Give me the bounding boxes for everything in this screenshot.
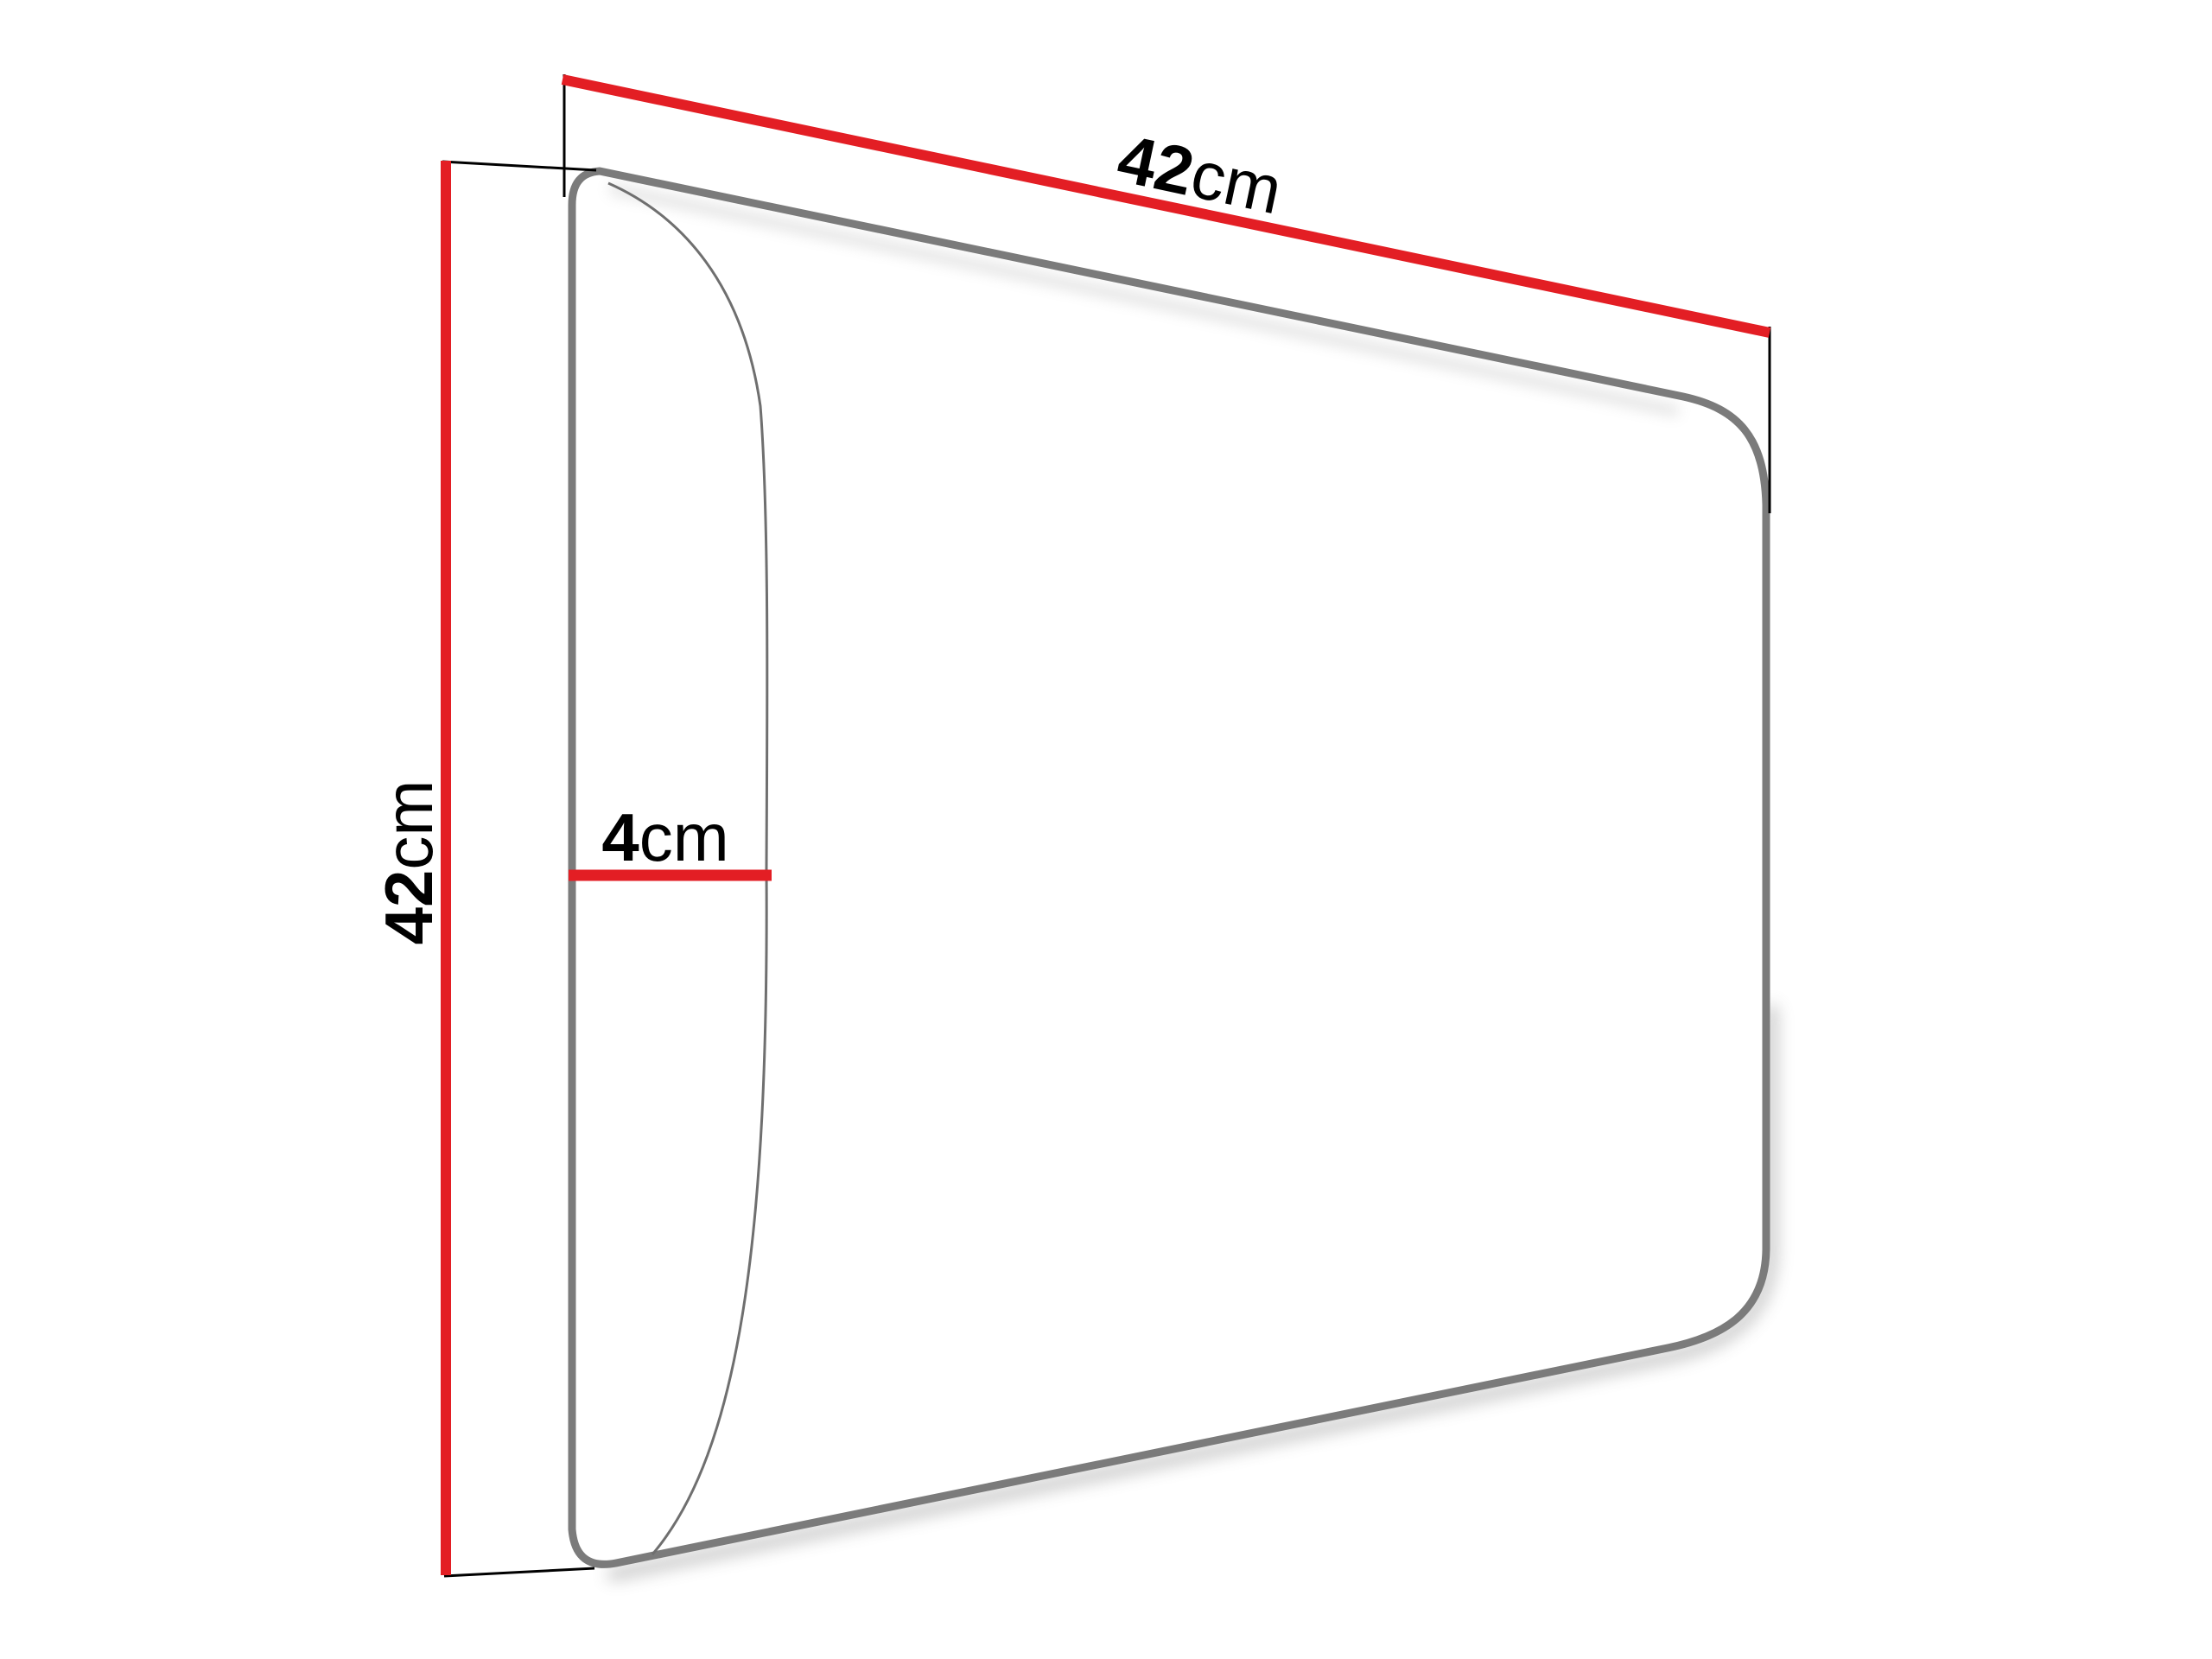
depth-dimension-label: 4cm [601,799,728,875]
width-dimension-label: 42cm [1111,120,1288,229]
depth-unit: cm [639,799,729,875]
panel-outline [572,171,1766,1564]
panel-dimension-diagram: 42cm 42cm 4cm [0,0,2212,1659]
height-value: 42 [371,870,447,945]
height-dimension-label: 42cm [371,780,447,945]
extension-line-top-left-horizontal [442,162,596,170]
extension-line-bottom-left-horizontal [444,1568,594,1576]
height-unit: cm [371,780,447,870]
depth-value: 4 [601,799,639,875]
diagram-svg: 42cm 42cm 4cm [0,0,2212,1659]
